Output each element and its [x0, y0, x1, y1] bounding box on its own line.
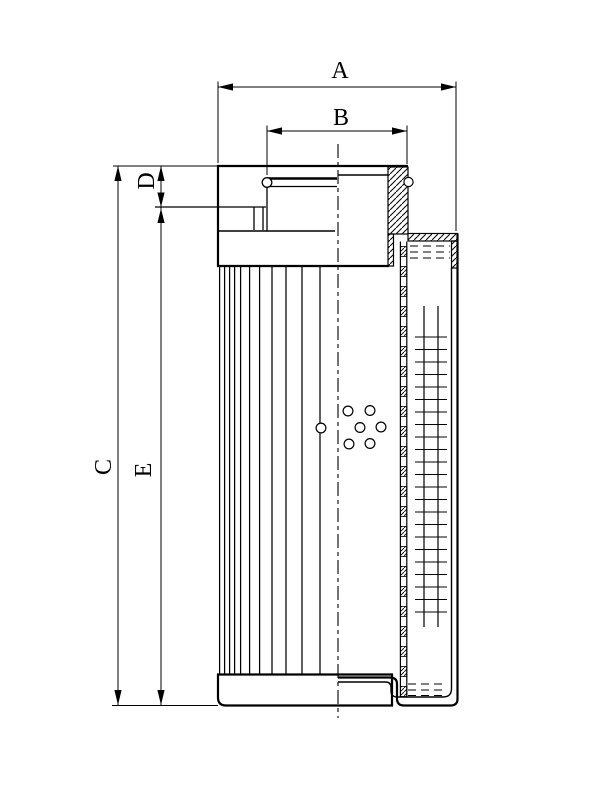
core-tube-section-square — [400, 267, 406, 277]
dim-a-arrow-left — [218, 83, 233, 90]
dim-c-arrow-bottom — [114, 690, 121, 705]
core-tube-section-square — [400, 547, 406, 557]
core-tube-section-square — [400, 467, 406, 477]
drawing-sheet: A B C D E — [0, 0, 612, 792]
core-tube-section-square — [400, 607, 406, 617]
core-tube-section-square — [400, 587, 406, 597]
dimension-c — [114, 166, 121, 705]
core-tube-section-square — [400, 627, 406, 637]
core-tube-section-square — [400, 247, 406, 257]
core-holes — [316, 406, 386, 449]
pleated-media — [220, 267, 320, 675]
dim-d-arrow-bottom — [157, 193, 164, 208]
bowl-inner-contour — [338, 268, 452, 697]
dim-label-e: E — [131, 463, 157, 478]
core-tube-section-square — [400, 667, 406, 677]
core-tube-section-square — [400, 347, 406, 357]
perforation-hole — [355, 423, 365, 433]
mesh-screen — [415, 306, 447, 627]
dimension-b — [267, 126, 407, 176]
perforation-hole — [344, 439, 354, 449]
perforation-hole — [343, 406, 353, 416]
core-tube-section-square — [400, 567, 406, 577]
head-wall-section — [388, 167, 408, 234]
core-tube-section-square — [400, 527, 406, 537]
dim-label-a: A — [331, 58, 349, 84]
dim-b-arrow-right — [392, 127, 407, 134]
core-tube-section-square — [400, 507, 406, 517]
dim-c-arrow-top — [114, 166, 121, 181]
oil-dashes-bottom — [408, 684, 446, 696]
perforation-hole — [316, 423, 326, 433]
core-tube — [400, 242, 406, 698]
technical-drawing: A B C D E — [0, 0, 612, 792]
core-tube-section-square — [400, 447, 406, 457]
oring-seal — [404, 177, 413, 186]
perforation-hole — [365, 439, 375, 449]
core-tube-section-square — [400, 407, 406, 417]
seal-bar-end — [262, 178, 272, 188]
dim-label-b: B — [333, 105, 349, 131]
perforation-hole — [376, 422, 386, 432]
core-tube-section-square — [400, 387, 406, 397]
head-neck-section — [388, 234, 394, 266]
outer-shell — [338, 234, 458, 706]
top-end-cap — [155, 165, 408, 267]
core-tube-section-square — [400, 647, 406, 657]
bowl-outer-contour — [338, 234, 458, 706]
dim-a-arrow-right — [441, 83, 456, 90]
mounting-flange-section — [408, 234, 458, 242]
dim-e-arrow-top — [157, 209, 164, 224]
bottom-end-cap — [218, 675, 392, 706]
core-tube-section-square — [400, 327, 406, 337]
core-tube-section-square — [400, 367, 406, 377]
dim-b-arrow-left — [267, 127, 282, 134]
hatched-sections — [388, 167, 458, 268]
core-tube-section-square — [400, 427, 406, 437]
dim-label-c: C — [91, 459, 117, 475]
dim-e-arrow-bottom — [157, 690, 164, 705]
dimension-d-e — [157, 166, 164, 705]
dim-label-d: D — [134, 172, 160, 189]
oil-dashes-top — [410, 246, 450, 258]
core-tube-section-square — [400, 687, 406, 697]
perforation-hole — [365, 406, 375, 416]
core-tube-section-square — [400, 487, 406, 497]
core-tube-section-square — [400, 287, 406, 297]
core-tube-section-square — [400, 307, 406, 317]
